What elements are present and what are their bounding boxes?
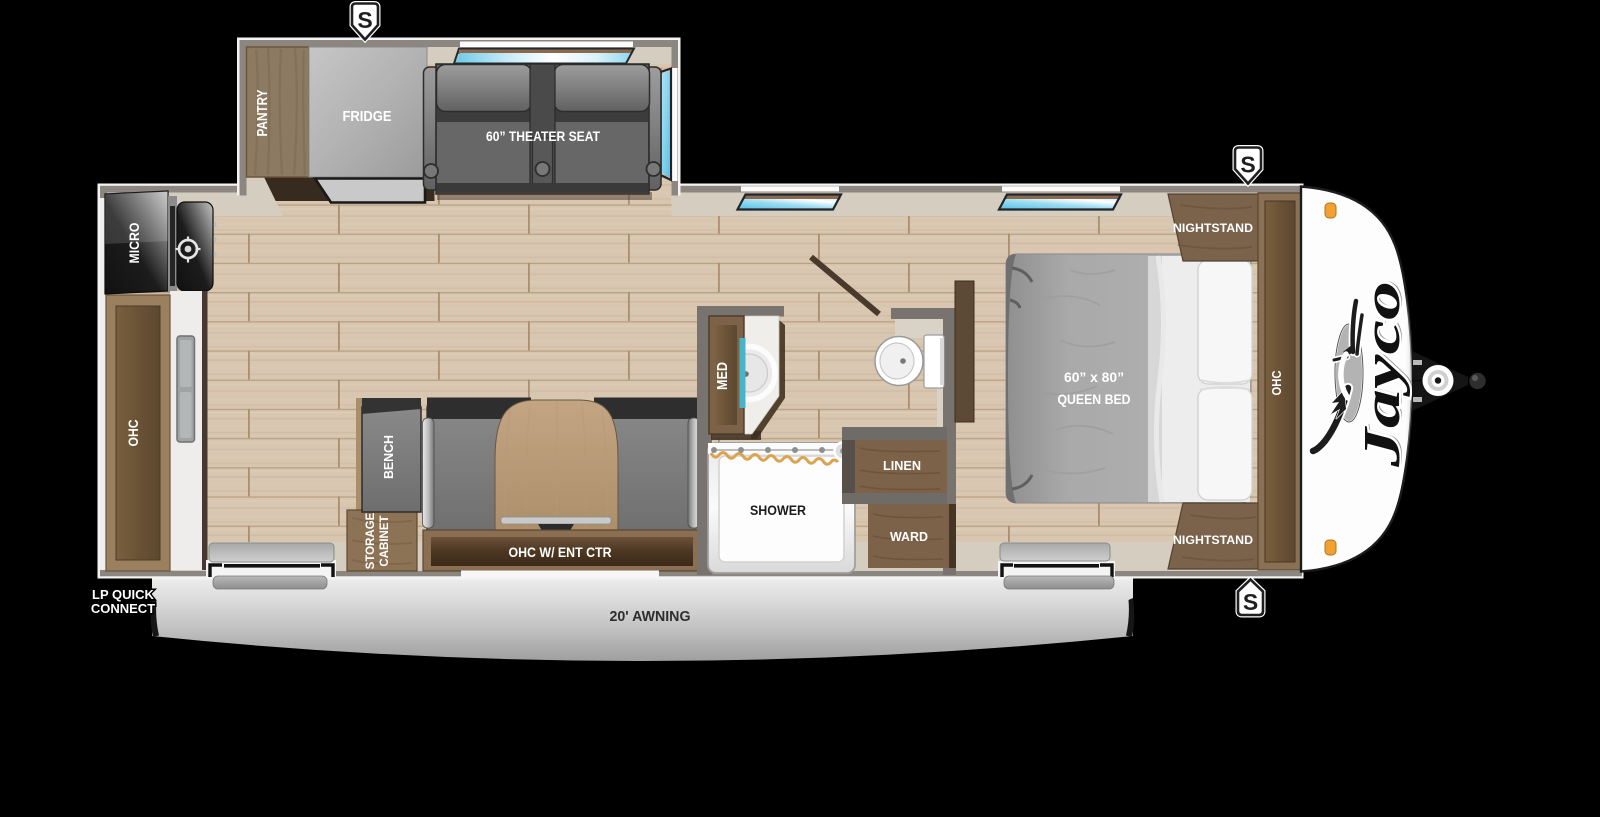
- svg-text:NIGHTSTAND: NIGHTSTAND: [1173, 535, 1253, 547]
- svg-text:FRIDGE: FRIDGE: [343, 108, 392, 125]
- svg-text:CONNECT: CONNECT: [91, 601, 155, 616]
- svg-text:MICRO: MICRO: [126, 222, 142, 263]
- svg-text:60” THEATER SEAT: 60” THEATER SEAT: [486, 129, 601, 144]
- svg-text:S: S: [1243, 589, 1258, 615]
- svg-text:NIGHTSTAND: NIGHTSTAND: [1173, 223, 1253, 235]
- svg-text:PANTRY: PANTRY: [254, 90, 271, 137]
- svg-text:60” x 80”: 60” x 80”: [1064, 369, 1124, 385]
- svg-text:WARD: WARD: [890, 530, 928, 544]
- svg-text:S: S: [357, 7, 372, 33]
- svg-text:20' AWNING: 20' AWNING: [610, 609, 691, 625]
- svg-text:S: S: [1240, 152, 1255, 178]
- svg-text:OHC W/ ENT CTR: OHC W/ ENT CTR: [509, 545, 612, 560]
- svg-text:MED: MED: [715, 362, 731, 390]
- svg-text:OHC: OHC: [125, 420, 141, 447]
- svg-text:SHOWER: SHOWER: [750, 503, 806, 518]
- svg-text:LP QUICK: LP QUICK: [92, 587, 154, 602]
- svg-text:CABINET: CABINET: [379, 515, 391, 566]
- svg-text:STORAGE: STORAGE: [365, 512, 377, 569]
- svg-text:BENCH: BENCH: [381, 435, 396, 479]
- svg-text:QUEEN BED: QUEEN BED: [1058, 391, 1131, 407]
- svg-text:LINEN: LINEN: [883, 459, 921, 473]
- svg-text:OHC: OHC: [1269, 370, 1284, 396]
